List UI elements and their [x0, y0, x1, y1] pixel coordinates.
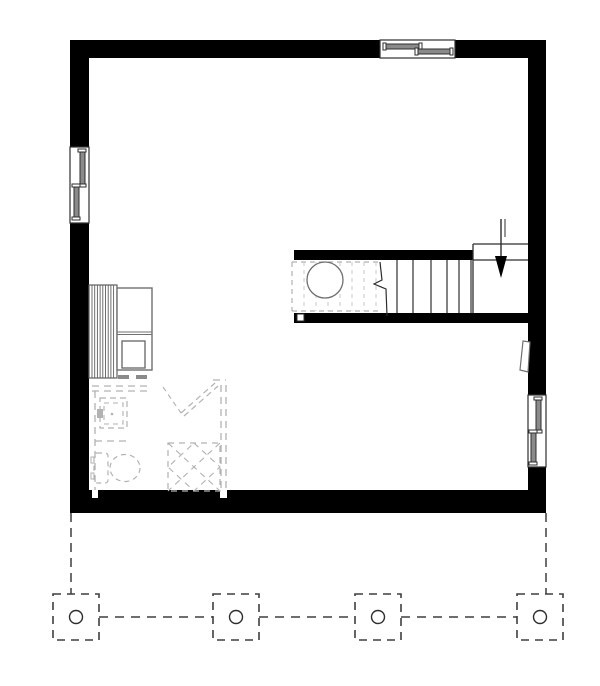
- future-shower-inner: [104, 403, 123, 424]
- window-left-sash-bottom-cap-a: [72, 184, 80, 187]
- window-right-sash-bottom-cap-a: [529, 430, 537, 433]
- water-heater: [307, 262, 343, 298]
- future-toilet-tank: [94, 453, 108, 483]
- stair-wall-lower: [294, 313, 528, 323]
- deck-pier-post-1: [70, 611, 83, 624]
- stair-direction-arrow-head: [495, 256, 507, 278]
- floor-plan-page: [0, 0, 600, 686]
- stair-wall-post: [297, 314, 304, 321]
- window-top-sash-right-cap-b: [450, 48, 453, 55]
- window-right-sash-bottom-cap-b: [529, 462, 537, 465]
- outer-wall-left: [70, 40, 89, 490]
- deck-pier-post-3: [372, 611, 385, 624]
- wall-notch-left: [92, 490, 98, 498]
- outer-wall-bottom: [70, 490, 546, 513]
- future-door-swing: [163, 387, 181, 413]
- floor-plan-canvas: [0, 0, 600, 686]
- future-door-leaf-b: [184, 386, 218, 416]
- future-toilet-bowl: [110, 455, 140, 482]
- outer-wall-top: [70, 40, 546, 58]
- future-toilet-tab-a: [91, 457, 94, 463]
- electrical-panel: [520, 341, 530, 372]
- stair-wall-upper: [294, 250, 473, 260]
- window-top-sash-right-cap-a: [415, 48, 418, 55]
- window-right-sash-top-cap-a: [534, 397, 542, 400]
- future-toilet-tab-b: [91, 473, 94, 479]
- window-left-sash-bottom: [74, 186, 79, 219]
- window-right-sash-top: [536, 399, 541, 432]
- window-top-sash-right: [417, 49, 453, 54]
- window-top-sash-left-cap-a: [383, 43, 386, 50]
- future-door-leaf-a: [181, 383, 215, 413]
- furnace-foot-b: [136, 375, 147, 379]
- window-right-sash-bottom: [531, 432, 536, 464]
- window-left-sash-bottom-cap-b: [72, 217, 80, 220]
- deck-pier-post-2: [230, 611, 243, 624]
- window-left-sash-top: [80, 151, 85, 185]
- window-left-sash-top-cap-a: [78, 149, 86, 152]
- deck-pier-post-4: [534, 611, 547, 624]
- future-shower-valve: [97, 409, 103, 418]
- future-shower-drain: [111, 413, 114, 416]
- furnace-foot-a: [118, 375, 129, 379]
- wall-notch-right: [220, 490, 227, 498]
